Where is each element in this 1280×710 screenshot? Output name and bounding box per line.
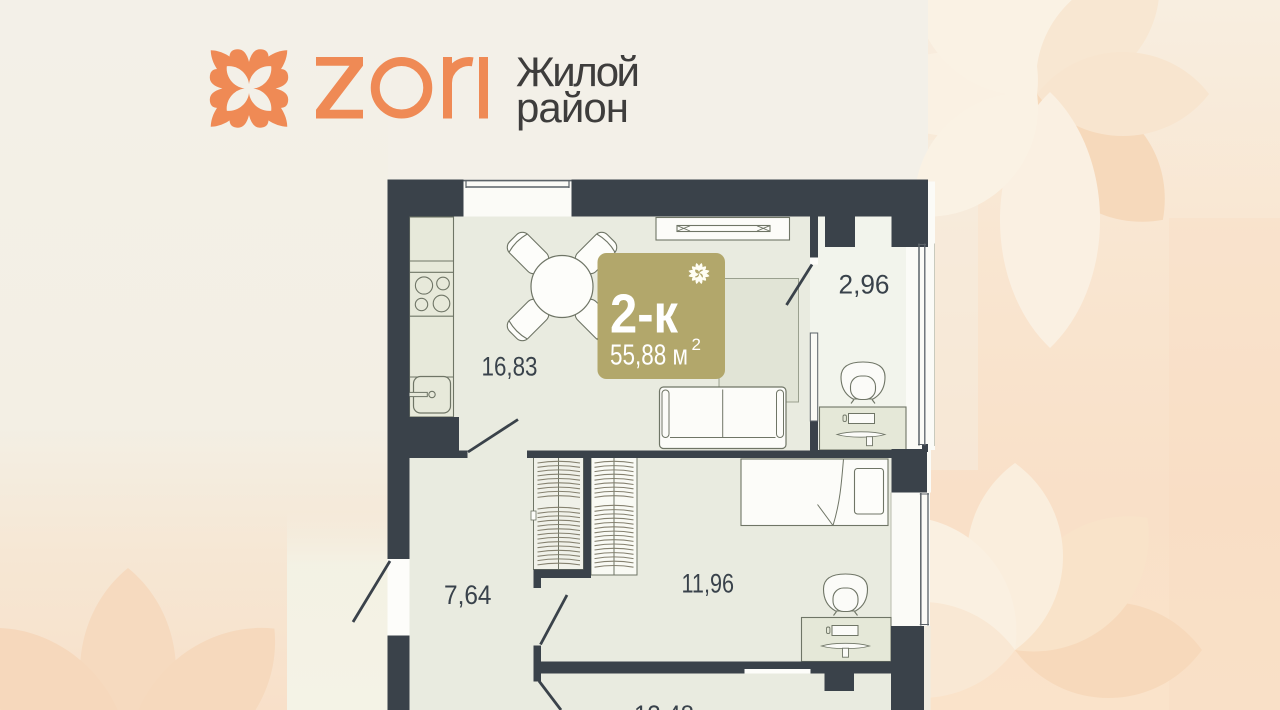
svg-text:2-к: 2-к (610, 283, 678, 345)
svg-text:7,64: 7,64 (444, 580, 492, 610)
svg-text:2: 2 (692, 335, 701, 354)
svg-text:13,48: 13,48 (634, 700, 694, 710)
svg-text:11,96: 11,96 (682, 569, 735, 599)
svg-text:2,96: 2,96 (839, 270, 890, 300)
svg-text:55,88 м: 55,88 м (610, 340, 688, 372)
svg-text:16,83: 16,83 (482, 352, 538, 382)
svg-text:район: район (516, 84, 629, 131)
